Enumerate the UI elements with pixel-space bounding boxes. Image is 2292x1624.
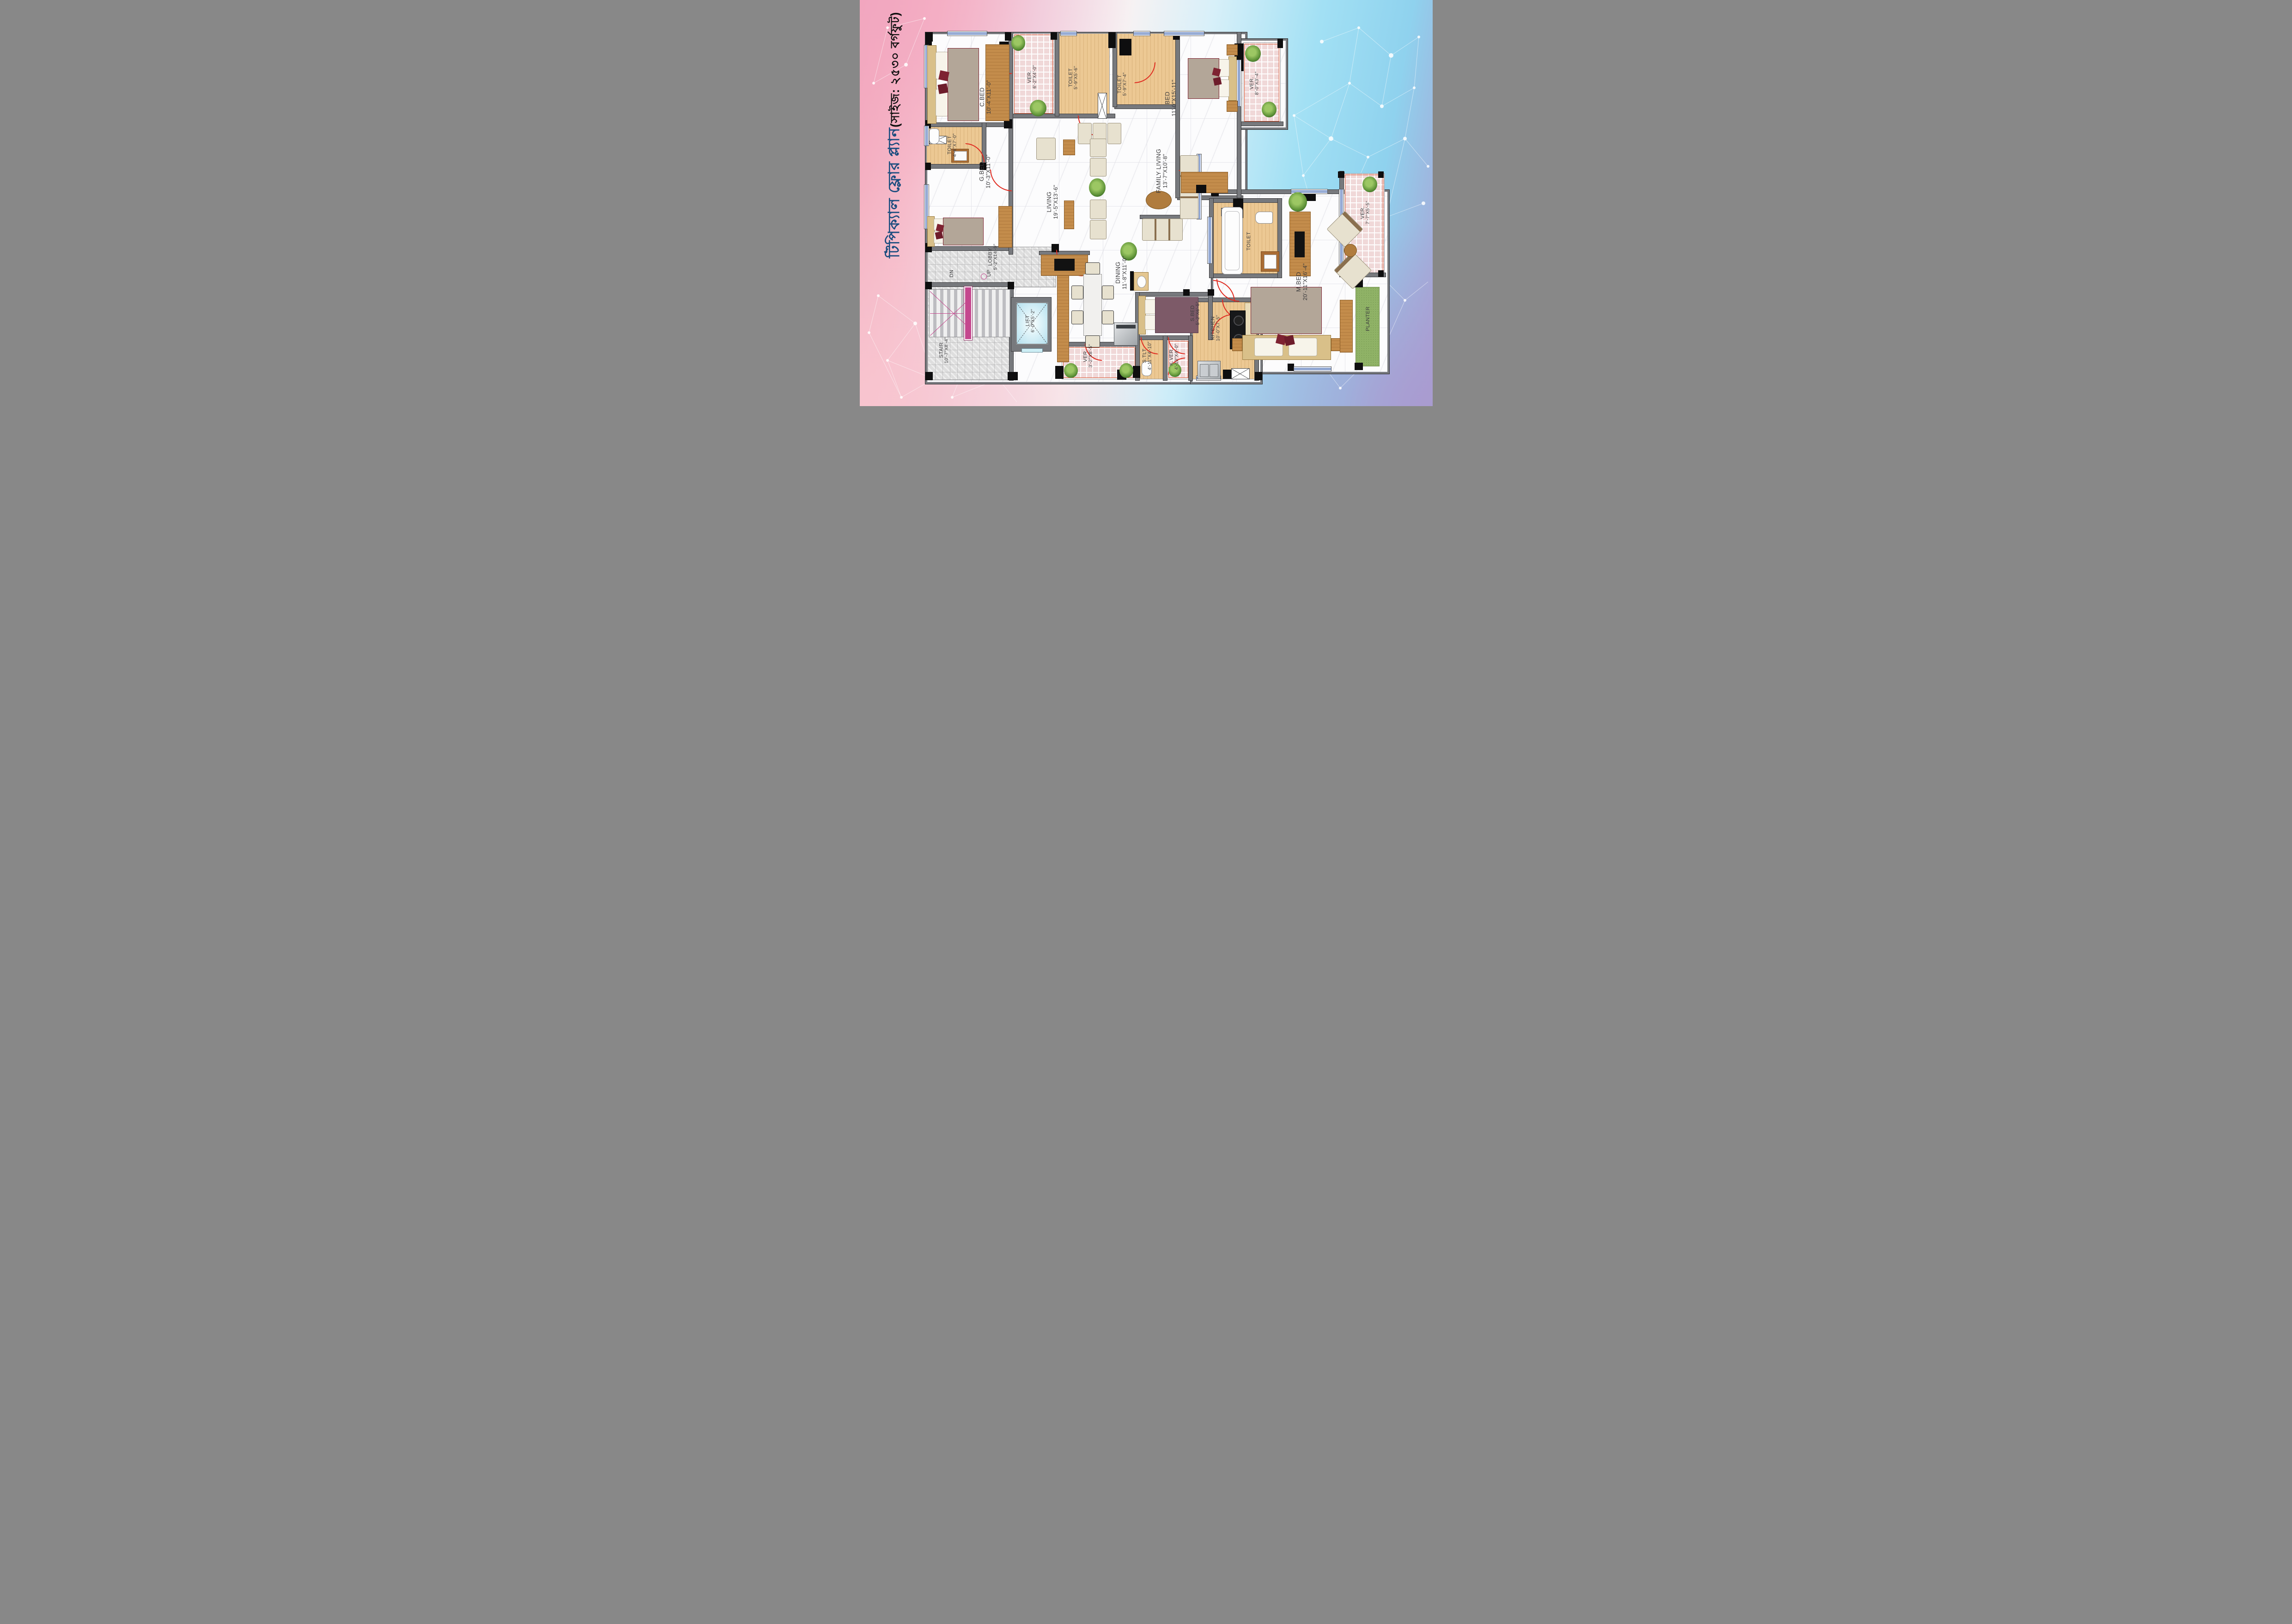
title-main: টিপিক্যাল ফ্লোর প্ল্যান	[885, 128, 902, 258]
stair-railing	[964, 286, 972, 340]
bed-bedroom	[1188, 56, 1237, 100]
window	[1208, 217, 1212, 263]
bed-cbed	[927, 45, 979, 123]
page-title: টিপিক্যাল ফ্লোর প্ল্যান(সাইজ: ২৫৩০ বর্গফ…	[882, 12, 908, 258]
floor-plan-page: টিপিক্যাল ফ্লোর প্ল্যান(সাইজ: ২৫৩০ বর্গফ…	[860, 0, 1433, 406]
plant	[1089, 178, 1106, 197]
living-cushion	[1090, 220, 1106, 239]
label-dining: DINING11'-8"X11'-0"	[1115, 256, 1128, 290]
oval-table	[1146, 191, 1172, 209]
column	[1277, 39, 1283, 48]
wall	[925, 123, 1011, 127]
bedside-table	[1227, 101, 1238, 112]
window	[1061, 31, 1076, 36]
column	[1051, 32, 1057, 40]
family-sofa	[1142, 219, 1183, 241]
plant	[1011, 35, 1025, 51]
wash-basin	[1134, 272, 1149, 291]
label-toilet-m: TOILET	[1246, 232, 1251, 251]
window	[1134, 31, 1150, 36]
column	[1338, 171, 1344, 178]
label-dn: DN	[948, 270, 954, 278]
label-toilet-c: TOILET4'-6"X7'-0"	[947, 134, 958, 157]
dining-chair	[1071, 286, 1083, 299]
desk-chair	[1196, 185, 1206, 193]
shaft-box	[1231, 368, 1250, 379]
coffee-table	[1064, 201, 1074, 229]
plant	[1289, 192, 1307, 212]
label-up: UP	[986, 269, 991, 277]
window	[948, 31, 987, 36]
dining-table	[1083, 274, 1102, 336]
label-sbed: S.BED5'-2"X6'-5"	[1190, 302, 1201, 325]
wall	[1140, 215, 1183, 219]
sink-toilet-m	[1261, 251, 1279, 272]
label-family-living: FAMILY LIVING13'-7"X10'-8"	[1155, 149, 1168, 193]
dining-chair	[1071, 310, 1083, 324]
wall	[1055, 32, 1059, 116]
wall	[925, 283, 1013, 286]
plant	[1064, 363, 1078, 378]
living-armchair	[1036, 138, 1056, 160]
floor-plan: C.BED10'-4"X11'-0" VER.6'-2"X4'-0" TOILE…	[925, 32, 1387, 380]
label-lobby: LOBBY5'-2"X14'-9"	[987, 244, 998, 270]
bedside-table	[1232, 338, 1242, 351]
dining-chair	[1102, 286, 1114, 299]
living-cushion	[1090, 139, 1106, 157]
column	[1055, 366, 1064, 379]
living-cushion	[1090, 200, 1106, 219]
column	[1008, 282, 1014, 289]
plant	[1030, 100, 1046, 116]
lift-door-sill	[1021, 348, 1043, 353]
window	[1237, 60, 1241, 106]
cabinet-mbed	[1340, 300, 1353, 353]
wall	[925, 164, 986, 168]
stair-up-marker	[981, 274, 987, 280]
dining-cabinet	[1057, 275, 1069, 362]
wall	[1163, 336, 1167, 380]
tv-cabinet	[1041, 255, 1088, 276]
plant	[1119, 363, 1133, 378]
label-stair: STAIR10'-7"X8'-4"	[938, 337, 949, 364]
bathtub	[1222, 207, 1243, 274]
label-mbed: M.BED20'-11"X16'-4"	[1295, 263, 1308, 301]
column	[925, 282, 932, 289]
column	[1119, 39, 1131, 55]
dining-chair	[1102, 310, 1114, 324]
wc-toilet-c	[929, 128, 939, 144]
column	[1183, 289, 1190, 296]
basin-partition	[1130, 271, 1134, 291]
label-cbed: C.BED10'-4"X11'-0"	[979, 80, 992, 114]
coffee-table	[1063, 140, 1075, 155]
label-toilet-a: TOILET5'-9"X5'-6"	[1068, 66, 1079, 90]
column	[1288, 364, 1294, 371]
column	[1008, 372, 1018, 380]
plant	[1262, 102, 1277, 117]
wall	[1213, 274, 1282, 278]
stair-cross-line	[930, 313, 964, 314]
plant	[1362, 176, 1377, 192]
label-gbed: G.BED10'-3"X11'-0"	[979, 154, 991, 188]
wardrobe-gbed	[998, 206, 1012, 248]
dining-chair	[1085, 262, 1100, 274]
column	[1223, 370, 1232, 379]
column	[1378, 270, 1384, 277]
window	[924, 126, 929, 146]
stair-flight-right	[971, 289, 1010, 337]
label-bed: BED11'-0"X15'-11"	[1164, 79, 1177, 116]
column	[1108, 32, 1116, 48]
kitchen-sink	[1198, 361, 1221, 379]
side-table-round	[1344, 244, 1357, 257]
label-kver: K.VER.4'-10"X4'-0"	[1168, 344, 1179, 370]
wc-toilet-m	[1255, 212, 1273, 224]
column	[1355, 363, 1363, 370]
label-living: LIVING19'-5"X13'-6"	[1046, 185, 1059, 219]
title-size: (সাইজ: ২৫৩০ বর্গফুট)	[888, 12, 902, 127]
living-chair	[1107, 123, 1121, 144]
column	[1378, 171, 1384, 178]
bedside-table	[1227, 44, 1238, 55]
column	[1255, 372, 1262, 380]
plant	[1245, 45, 1261, 62]
window	[1294, 367, 1331, 371]
bed-gbed	[927, 216, 984, 246]
label-lift: LIFT6'-0"X5'-2"	[1025, 309, 1036, 333]
label-ver-top: VER.6'-2"X4'-0"	[1027, 65, 1038, 89]
label-stlt: S.TLT4'-11"X4'-10"	[1142, 341, 1153, 370]
bed-mbed	[1242, 287, 1330, 360]
living-cushion	[1090, 158, 1106, 176]
wall	[1211, 199, 1282, 202]
column	[925, 163, 931, 170]
label-ver-right: VER.7'-7"X5'-5"	[1360, 201, 1371, 225]
wall	[1189, 336, 1192, 380]
window	[1164, 31, 1204, 36]
column	[1133, 366, 1140, 378]
label-ver-right-top: VER.8'-0"X3'-4"	[1249, 72, 1260, 95]
label-toilet-b: TOILET5'-9"X7'-4"	[1117, 73, 1128, 96]
label-kitchen: KITCHEN10'-0"X7'-5"	[1210, 315, 1221, 341]
column	[925, 372, 933, 380]
label-planter: PLANTER	[1365, 306, 1370, 331]
column	[1005, 32, 1011, 41]
fridge	[1114, 322, 1138, 346]
label-ver-bottom: VER.3'-2"X8'-5"	[1082, 344, 1094, 368]
column	[925, 32, 933, 42]
wall	[1239, 122, 1283, 126]
